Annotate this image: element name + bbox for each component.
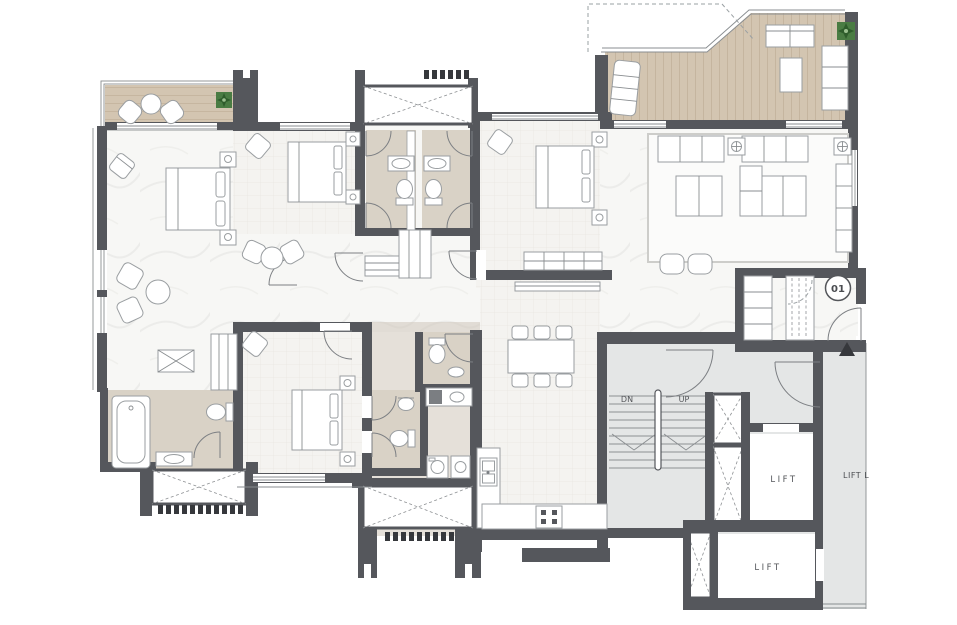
lamp-side-table	[728, 138, 745, 155]
foyer-closet	[744, 276, 772, 340]
dining-area	[508, 326, 574, 387]
foyer-shaft	[786, 276, 814, 340]
unit-number: 01	[831, 284, 845, 295]
window	[786, 121, 842, 128]
dining-table	[508, 340, 574, 373]
console-table	[740, 166, 762, 216]
toilet	[390, 430, 415, 447]
ottoman	[158, 350, 194, 372]
window	[97, 250, 107, 290]
coffee-table	[676, 176, 722, 216]
washer	[427, 456, 448, 478]
toilet	[429, 338, 445, 364]
bathtub	[112, 396, 150, 468]
ottoman	[688, 254, 712, 274]
round-table	[261, 247, 283, 269]
stair-handrail	[655, 390, 661, 470]
lounge-chair	[609, 60, 641, 116]
stairs-up-label: UP	[679, 395, 690, 404]
sofa	[742, 136, 808, 162]
potted-plant	[216, 92, 232, 108]
lift-upper: LIFT	[750, 434, 813, 526]
potted-plant	[837, 22, 855, 40]
lift-lower: LIFT	[716, 534, 815, 598]
wardrobe	[211, 334, 237, 390]
dryer	[451, 456, 470, 478]
toilet	[207, 403, 234, 421]
kitchen-sink	[480, 458, 497, 486]
ottoman	[660, 254, 684, 274]
outdoor-table	[780, 58, 802, 92]
window	[280, 123, 350, 130]
washbasin	[448, 367, 464, 377]
window	[97, 297, 107, 333]
lamp-side-table	[834, 138, 851, 155]
outdoor-bench	[822, 46, 848, 110]
wardrobe	[524, 252, 602, 270]
unit-number-badge: 01	[826, 276, 851, 301]
window	[117, 123, 217, 130]
outdoor-sofa	[766, 25, 814, 47]
window	[253, 474, 325, 482]
sofa	[658, 136, 724, 162]
floor-plan: DN UP LIFT LIFT LIFT L	[0, 0, 957, 625]
window	[614, 121, 666, 128]
cabinet	[365, 256, 399, 276]
washbasin	[398, 398, 414, 411]
floor-plan-canvas: DN UP LIFT LIFT LIFT L	[0, 0, 957, 625]
window	[492, 114, 598, 120]
living-room	[648, 134, 852, 274]
bench	[836, 164, 852, 252]
coffee-table	[760, 176, 806, 216]
vanity-double-basin	[426, 388, 472, 406]
stove	[536, 506, 562, 528]
lift-lower-label: LIFT	[754, 563, 781, 573]
stairs-down-label: DN	[621, 395, 633, 404]
lift-upper-label: LIFT	[770, 475, 797, 485]
washbasin	[156, 452, 192, 466]
wardrobe	[399, 230, 431, 278]
lift-lobby-label: LIFT L	[843, 471, 869, 480]
round-table	[146, 280, 170, 304]
round-table	[141, 94, 161, 114]
window-bench	[515, 282, 600, 291]
